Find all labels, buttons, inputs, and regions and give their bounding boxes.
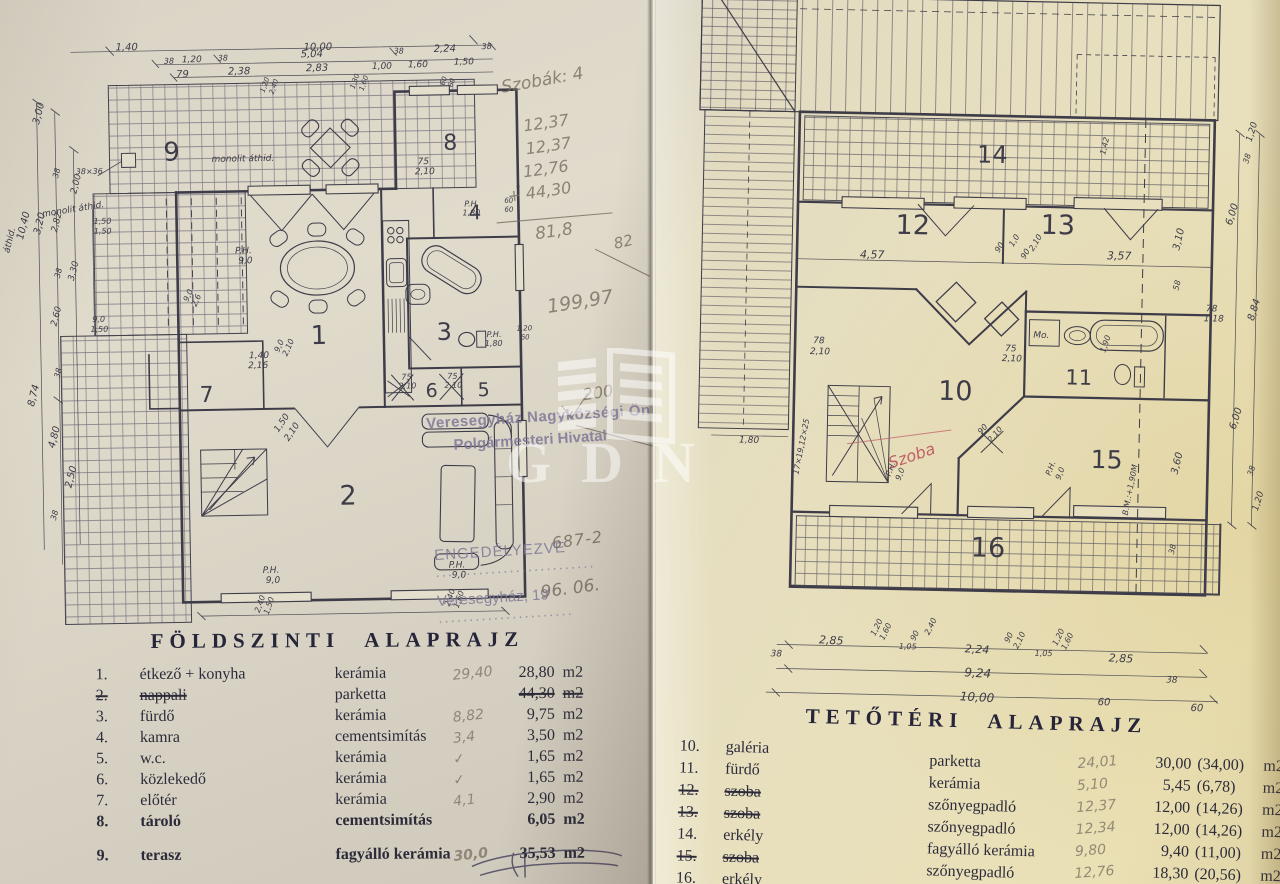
plan-label: 60	[504, 206, 514, 214]
ground-floor-title: FÖLDSZINTI ALAPRAJZ	[57, 627, 617, 655]
legend-row: 7.előtérkerámia4,12,90m2	[58, 788, 618, 812]
legend-num: 11.	[679, 757, 726, 780]
legend-num: 8.	[96, 811, 140, 832]
legend-unit: m2	[555, 788, 595, 809]
legend-unit: m2	[1252, 865, 1280, 884]
legend-hand: 12,76	[1074, 859, 1126, 884]
legend-mat: fagyálló kerámia	[336, 843, 454, 865]
legend-row: 9.teraszfagyálló kerámia30,035,53m2	[59, 843, 619, 867]
legend-num: 1.	[96, 664, 140, 685]
legend-num: 9.	[97, 845, 141, 866]
plan-label: 9,24	[964, 665, 991, 680]
plan-label: 3,57	[1107, 249, 1132, 263]
plan-label: P.H.	[235, 246, 252, 256]
plan-label: 2,16	[248, 361, 268, 371]
room-number-16: 16	[971, 532, 1006, 564]
plan-label: 38	[218, 54, 228, 63]
plan-label: 12,76	[522, 156, 570, 181]
legend-num: 7.	[96, 790, 140, 811]
plan-label: 78	[1206, 304, 1218, 314]
plan-label: 3,20	[32, 211, 48, 235]
legend-val: 28,80	[501, 662, 555, 683]
red-pen-stroke	[847, 428, 951, 446]
plan-label: 90	[976, 422, 989, 436]
legend-val: 35,53	[502, 843, 556, 864]
legend-num: 4.	[96, 727, 140, 748]
plan-label: 5,04	[301, 49, 323, 60]
legend-unit: m2	[1255, 755, 1280, 778]
plan-label: 79	[176, 69, 189, 80]
stamp-date-hand: 96. 06.	[540, 575, 602, 603]
plan-label: 1,20	[182, 55, 202, 65]
plan-label: 1,40	[249, 351, 269, 361]
legend-unit: m2	[555, 704, 595, 725]
plan-label: 60	[1098, 697, 1111, 708]
plan-label: 1,50	[94, 217, 112, 226]
plan-label: 38	[49, 509, 60, 521]
legend-val: 18,30	[1124, 862, 1189, 884]
plan-label: P.H.	[487, 330, 502, 339]
page-seam	[647, 0, 656, 884]
plan-label: 1,60	[408, 60, 428, 70]
legend-row: 6.közlekedőkerámia✓1,65m2	[58, 767, 618, 791]
ground-floor-legend-rows: 1.étkező + konyhakerámia29,4028,80m22.na…	[58, 662, 619, 867]
legend-val: 30,00	[1127, 752, 1192, 776]
legend-name: tároló	[140, 810, 335, 832]
plan-label: 8,74	[26, 383, 42, 407]
plan-label: 38	[1166, 676, 1178, 686]
plan-label: 78	[813, 336, 825, 346]
room-number-5: 5	[477, 379, 489, 401]
plan-label: 4,57	[860, 248, 885, 262]
room-number-12: 12	[895, 210, 930, 242]
plan-label: + 44,30	[506, 178, 572, 206]
room-number-10: 10	[938, 376, 973, 408]
plan-label: 2,10	[415, 167, 435, 177]
plan-label: 1,50	[90, 325, 108, 334]
plan-label: 1,50	[94, 227, 112, 236]
legend-paren: (20,56)	[1188, 864, 1253, 884]
legend-num: 2.	[96, 685, 140, 706]
plan-label: 2,38	[228, 66, 250, 77]
plan-label: 2,10	[398, 381, 416, 390]
plan-label: 90	[909, 629, 922, 642]
room-number-13: 13	[1040, 210, 1075, 242]
legend-unit: m2	[1253, 821, 1280, 844]
legend-val: 1,65	[501, 767, 555, 788]
plan-label: 2,60	[50, 305, 65, 327]
room-number-9: 9	[163, 137, 180, 167]
legend-unit: m2	[556, 843, 596, 864]
legend-mat: kerámia	[335, 767, 453, 789]
plan-label: 6,00	[1224, 202, 1241, 227]
plan-label: 1,80	[739, 436, 760, 446]
legend-row: 1.étkező + konyhakerámia29,4028,80m2	[58, 662, 618, 686]
legend-name: nappali	[140, 684, 335, 706]
plan-label: 38	[770, 649, 782, 659]
plan-label: 2,00	[69, 173, 84, 195]
plan-label: 3,60	[1170, 451, 1186, 475]
legend-num: 14.	[677, 823, 724, 846]
attic-legend: TETŐTÉRI ALAPRAJZ 10.galériaparketta24,0…	[662, 700, 1280, 884]
plan-label: 2,10	[281, 337, 296, 357]
plan-label: 81,8	[534, 219, 574, 244]
plan-label: 1,00	[372, 62, 392, 72]
plan-label: 75	[418, 157, 430, 167]
plan-label: 12,37	[524, 133, 573, 158]
plan-label: 38	[1246, 464, 1258, 476]
stamp-approved-line: ENGEDÉLYEZVE .......................... …	[434, 533, 653, 581]
plan-label: 2,24	[434, 44, 456, 55]
legend-name: fürdő	[140, 705, 335, 727]
legend-val: 6,05	[501, 809, 555, 830]
plan-label: 38	[164, 57, 174, 66]
plan-label: Szobák: 4	[500, 64, 585, 98]
plan-label: 2,40	[923, 616, 939, 636]
plan-label: 10,00	[959, 689, 994, 705]
attic-bathroom-fittings	[1028, 319, 1163, 388]
plan-label: 2,10	[810, 347, 831, 357]
legend-row: 3.fürdőkerámia8,829,75m2	[58, 704, 618, 728]
roof-hatching	[693, 0, 1220, 438]
legend-val: 12,00	[1125, 818, 1190, 842]
legend-hand: 30,0	[453, 842, 503, 868]
plan-label: 9,0	[1054, 466, 1067, 481]
room-number-14: 14	[977, 140, 1008, 169]
legend-val: 1,65	[501, 746, 555, 767]
legend-row: 5.w.c.kerámia✓1,65m2	[58, 746, 618, 770]
plan-label: 10,40	[15, 210, 33, 240]
legend-mat: kerámia	[335, 746, 453, 768]
plan-label: 75	[447, 372, 457, 381]
legend-mat: cementsimítás	[335, 725, 453, 747]
plan-label: 8,84	[1246, 298, 1263, 323]
legend-val: 9,75	[501, 704, 555, 725]
legend-paren: (34,00)	[1191, 754, 1256, 778]
plan-label: Mo.	[1033, 331, 1049, 341]
legend-num: 16.	[676, 867, 723, 884]
plan-label: 1,80	[485, 339, 503, 348]
plan-label: P.H.	[263, 566, 280, 576]
plan-label: 12,37	[522, 110, 571, 135]
legend-unit: m2	[555, 746, 595, 767]
plan-label: 2,24	[965, 642, 990, 656]
legend-name: terasz	[141, 844, 336, 866]
plan-label: 2,85	[819, 633, 844, 647]
legend-unit: m2	[1254, 799, 1280, 822]
legend-paren: (14,26)	[1189, 820, 1254, 844]
legend-val: 2,90	[501, 788, 555, 809]
plan-label: 1,50	[454, 57, 474, 67]
plan-label: 38	[394, 46, 404, 55]
plan-label: 1,0	[1007, 233, 1021, 249]
legend-hand	[453, 696, 501, 701]
legend-name: kamra	[140, 726, 335, 748]
plan-label: 1,05	[1035, 649, 1053, 658]
staircase	[201, 449, 268, 516]
legend-hand	[454, 822, 502, 827]
plan-label: monolit áthid.	[211, 154, 274, 165]
legend-unit: m2	[1254, 777, 1280, 800]
room-number-11: 11	[1065, 365, 1092, 390]
room-number-8: 8	[443, 131, 457, 156]
plan-label: 9,0	[266, 576, 281, 586]
page-attic: 14121310111516Szoba4,57901,0902,103,573,…	[653, 0, 1280, 884]
attic-legend-rows: 10.galériaparketta24,0130,00(34,00)m211.…	[662, 735, 1280, 884]
legend-row: 2.nappaliparketta44,30m2	[58, 683, 618, 707]
legend-paren: (6,78)	[1190, 776, 1255, 800]
plan-label: 60	[1190, 703, 1203, 714]
legend-mat: cementsimítás	[335, 809, 453, 831]
legend-num: 13.	[678, 801, 725, 824]
plan-label: 75	[401, 372, 411, 381]
legend-name: előtér	[140, 789, 335, 811]
legend-val: 3,50	[501, 725, 555, 746]
dining-table	[267, 222, 367, 314]
legend-unit: m2	[555, 725, 595, 746]
plan-label: 9,0	[238, 256, 253, 266]
legend-num: 10.	[679, 735, 726, 758]
page-ground-floor: 1,4010,00381,20385,04382,2438792,382,831…	[0, 0, 653, 884]
plan-label: 38	[482, 42, 492, 51]
plan-label: 1,18	[1204, 314, 1225, 324]
plan-label: 3,30	[67, 260, 82, 282]
legend-unit: m2	[1253, 843, 1280, 866]
plan-label: 1,80	[462, 208, 480, 217]
plan-label: 9,0	[92, 315, 105, 324]
room-number-3: 3	[436, 318, 452, 346]
legend-row: 4.kamracementsimítás3,43,50m2	[58, 725, 618, 749]
room-number-6: 6	[425, 380, 437, 402]
plan-label: 2,10	[1011, 630, 1027, 650]
legend-mat: kerámia	[335, 662, 453, 684]
attic-staircase	[826, 385, 890, 482]
plan-label: 60	[521, 333, 531, 341]
plan-label: 82	[612, 231, 635, 253]
legend-unit: m2	[555, 767, 595, 788]
legend-unit: m2	[555, 809, 595, 830]
plan-label: 38	[53, 267, 64, 279]
legend-name: közlekedő	[140, 768, 335, 790]
legend-name: w.c.	[140, 747, 335, 769]
legend-val: 44,30	[501, 683, 555, 704]
legend-paren: (11,00)	[1189, 842, 1254, 866]
legend-unit: m2	[555, 683, 595, 704]
plan-label: 2,85	[1108, 651, 1133, 665]
legend-val: 5,45	[1127, 774, 1192, 798]
plan-label: 58	[1171, 279, 1182, 291]
legend-num: 6.	[96, 769, 140, 790]
legend-paren: (14,26)	[1190, 798, 1255, 822]
legend-num: 5.	[96, 748, 140, 769]
stamp-approved-number: 687-2	[551, 527, 605, 553]
plan-label: áthid.	[2, 227, 18, 254]
legend-mat: kerámia	[335, 704, 453, 726]
plan-label: 200	[581, 381, 614, 405]
legend-unit: m2	[555, 662, 595, 683]
legend-mat: szőnyegpadló	[926, 860, 1075, 884]
plan-label: 38	[1241, 152, 1253, 164]
room-number-7: 7	[199, 383, 213, 408]
legend-mat: parketta	[335, 683, 453, 705]
plan-label: 199,97	[546, 286, 615, 318]
plan-label: 2,83	[306, 63, 328, 74]
plan-label: 3,00	[31, 101, 47, 125]
plan-label: P.H.	[464, 199, 479, 208]
legend-mat: kerámia	[335, 788, 453, 810]
legend-row: 8.tárolócementsimítás6,05m2	[58, 809, 618, 833]
plan-label: 1,40	[115, 42, 137, 53]
scanned-floor-plan-document: 1,4010,00381,20385,04382,2438792,382,831…	[0, 0, 1280, 884]
legend-num: 3.	[96, 706, 140, 727]
plan-label: 75	[1005, 344, 1017, 354]
plan-label: 2,10	[444, 381, 462, 390]
room-number-2: 2	[339, 480, 357, 511]
municipal-approval-stamp: Veresegyház Nagyközségi Önk Polgármester…	[426, 401, 653, 627]
legend-name: étkező + konyha	[140, 663, 335, 685]
plan-label: 3,10	[1171, 227, 1187, 251]
legend-val: 9,40	[1125, 840, 1190, 864]
plan-label: 1,20	[516, 324, 532, 332]
plan-label: 1,05	[899, 642, 917, 651]
room-number-1: 1	[310, 321, 327, 351]
room-number-15: 15	[1090, 445, 1122, 475]
plan-label: 1,20	[1251, 490, 1267, 512]
legend-val: 12,00	[1126, 796, 1191, 820]
legend-num: 12.	[678, 779, 725, 802]
plan-label: 2,10	[1002, 354, 1023, 364]
legend-num: 15.	[676, 845, 723, 868]
plan-label: 6,00	[1228, 406, 1245, 431]
ground-floor-legend: FÖLDSZINTI ALAPRAJZ 1.étkező + konyhaker…	[57, 627, 618, 867]
plan-label: 38	[51, 167, 62, 179]
